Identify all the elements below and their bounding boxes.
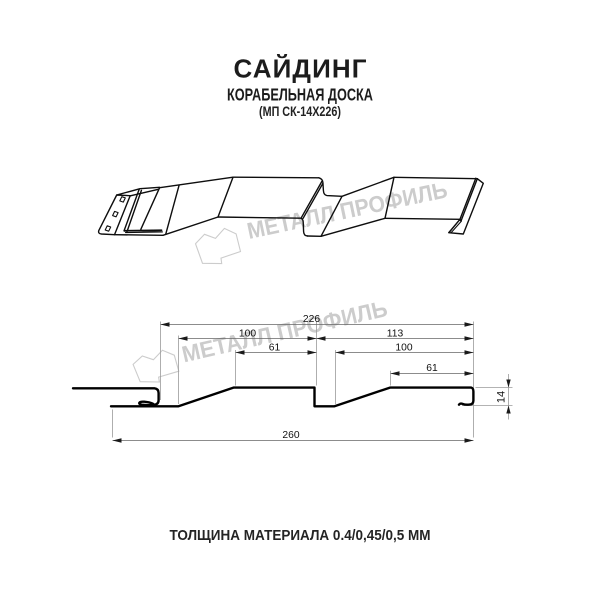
svg-text:14: 14	[496, 391, 508, 403]
svg-text:61: 61	[269, 343, 281, 354]
svg-text:(МП СК-14Х226): (МП СК-14Х226)	[259, 104, 341, 119]
svg-text:260: 260	[282, 430, 299, 441]
svg-text:100: 100	[239, 328, 256, 339]
svg-text:МЕТАЛЛ ПРОФИЛЬ: МЕТАЛЛ ПРОФИЛЬ	[179, 295, 390, 367]
svg-text:САЙДИНГ: САЙДИНГ	[234, 54, 367, 84]
svg-text:100: 100	[395, 343, 412, 354]
svg-text:113: 113	[387, 328, 404, 339]
svg-text:КОРАБЕЛЬНАЯ ДОСКА: КОРАБЕЛЬНАЯ ДОСКА	[227, 85, 373, 105]
svg-text:МЕТАЛЛ ПРОФИЛЬ: МЕТАЛЛ ПРОФИЛЬ	[245, 176, 450, 244]
svg-text:ТОЛЩИНА МАТЕРИАЛА 0.4/0,45/0,5: ТОЛЩИНА МАТЕРИАЛА 0.4/0,45/0,5 ММ	[170, 527, 431, 544]
svg-text:61: 61	[426, 363, 438, 374]
svg-text:226: 226	[303, 314, 320, 325]
